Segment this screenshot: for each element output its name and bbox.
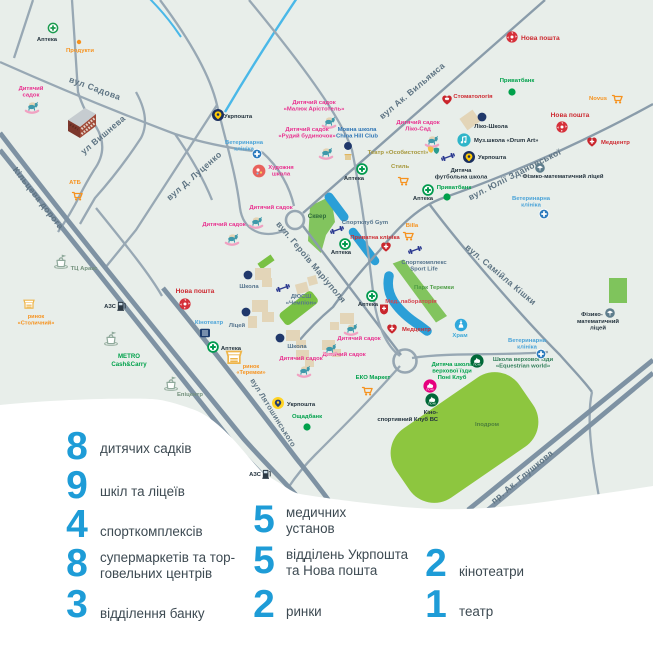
svg-text:спортивний Клуб ВС: спортивний Клуб ВС [377, 416, 438, 423]
svg-text:2: 2 [425, 542, 447, 585]
svg-text:4: 4 [66, 503, 88, 546]
svg-text:Мовна школа: Мовна школа [338, 127, 378, 133]
svg-text:ЕКО Маркет: ЕКО Маркет [356, 375, 391, 381]
svg-text:ліцей: ліцей [590, 325, 606, 332]
svg-text:театр: театр [459, 604, 493, 619]
svg-text:Аптека: Аптека [344, 176, 365, 182]
svg-text:«Рудий будиночок»: «Рудий будиночок» [278, 133, 336, 140]
svg-text:Школа: Школа [287, 344, 307, 350]
svg-text:Кінотеатр: Кінотеатр [195, 320, 224, 326]
svg-text:Продукти: Продукти [66, 48, 94, 54]
svg-text:медичних: медичних [286, 505, 347, 520]
svg-text:кінотеатри: кінотеатри [459, 564, 524, 579]
svg-text:Сквер: Сквер [308, 213, 327, 220]
svg-text:ринок: ринок [243, 364, 260, 370]
svg-text:Школа верхової їзди: Школа верхової їзди [493, 357, 554, 363]
svg-text:ПОНІ: ПОНІ [428, 402, 436, 406]
svg-text:Дитячий садок: Дитячий садок [202, 221, 245, 228]
svg-text:Novus: Novus [589, 96, 608, 102]
svg-text:«Столичний»: «Столичний» [18, 320, 55, 327]
svg-text:Фізико-математичний ліцей: Фізико-математичний ліцей [522, 173, 603, 180]
svg-text:Приватбанк: Приватбанк [500, 77, 535, 84]
svg-text:відділення банку: відділення банку [100, 606, 205, 621]
svg-text:клініка: клініка [517, 344, 538, 350]
svg-text:Ветеринарна: Ветеринарна [225, 140, 264, 146]
svg-text:Billa: Billa [406, 223, 419, 229]
svg-text:Стиль: Стиль [391, 164, 410, 170]
svg-text:Храм: Храм [452, 333, 467, 339]
svg-text:Дитячий садок: Дитячий садок [292, 99, 335, 106]
svg-text:Укрпошта: Укрпошта [478, 155, 507, 161]
svg-text:футбольна школа: футбольна школа [435, 174, 488, 181]
svg-text:Стоматологія: Стоматологія [453, 94, 493, 100]
svg-text:школа: школа [272, 172, 291, 178]
svg-text:клініка: клініка [521, 203, 542, 209]
svg-text:Укрпошта: Укрпошта [287, 402, 316, 408]
svg-text:Поні Клуб: Поні Клуб [438, 374, 467, 381]
svg-text:Епіцентр: Епіцентр [177, 392, 203, 398]
svg-text:ТЦ Аракс: ТЦ Аракс [71, 266, 99, 272]
svg-text:Укрпошта: Укрпошта [224, 114, 253, 120]
svg-text:8: 8 [66, 542, 88, 585]
svg-text:відділень Укрпошта: відділень Укрпошта [286, 547, 409, 562]
svg-text:Ліцей: Ліцей [229, 322, 246, 329]
svg-text:Приватна клініка: Приватна клініка [350, 235, 400, 241]
svg-text:Дитяча школа: Дитяча школа [432, 362, 473, 368]
svg-text:9: 9 [66, 464, 88, 507]
svg-text:3: 3 [66, 583, 88, 626]
svg-text:Аптека: Аптека [358, 302, 379, 308]
svg-text:Sport Life: Sport Life [410, 267, 438, 273]
svg-text:Аптека: Аптека [37, 37, 58, 43]
svg-text:8: 8 [66, 425, 88, 468]
svg-text:Спорткомплекс: Спорткомплекс [401, 260, 447, 266]
svg-text:Дитячий садок: Дитячий садок [249, 204, 292, 211]
svg-text:Іподром: Іподром [475, 422, 499, 428]
svg-text:Аптека: Аптека [331, 250, 352, 256]
svg-text:Ліко-Школа: Ліко-Школа [474, 124, 508, 130]
svg-text:спорткомплексів: спорткомплексів [100, 524, 203, 539]
svg-text:Нова пошта: Нова пошта [176, 288, 215, 295]
svg-text:Аптека: Аптека [413, 196, 434, 202]
svg-text:ринки: ринки [286, 604, 322, 619]
svg-text:говельних центрів: говельних центрів [100, 566, 212, 581]
svg-text:ПОНІ: ПОНІ [426, 388, 434, 392]
svg-text:математичний: математичний [577, 318, 619, 325]
svg-text:«Теремки»: «Теремки» [236, 370, 265, 376]
svg-text:Дитяча: Дитяча [451, 168, 473, 174]
svg-text:Фізико-: Фізико- [581, 312, 603, 318]
svg-text:Дитячий садок: Дитячий садок [285, 126, 328, 133]
svg-text:Театр «Особистості»: Театр «Особистості» [368, 149, 429, 156]
svg-text:Медцентр: Медцентр [601, 140, 630, 146]
svg-text:садок: садок [23, 93, 40, 99]
svg-text:Нова пошта: Нова пошта [551, 112, 590, 119]
svg-text:Дитячий садок: Дитячий садок [337, 335, 380, 342]
svg-text:Ліко-Сад: Ліко-Сад [405, 127, 431, 133]
svg-text:Парк Теремки: Парк Теремки [414, 285, 454, 291]
svg-text:клініка: клініка [234, 147, 255, 153]
svg-text:METRO: METRO [118, 353, 140, 360]
svg-text:Школа: Школа [239, 284, 259, 290]
svg-text:5: 5 [253, 539, 275, 582]
svg-text:5: 5 [253, 498, 275, 541]
svg-text:Муз.школа «Drum Art»: Муз.школа «Drum Art» [474, 138, 539, 144]
svg-text:верхової їзди: верхової їзди [432, 368, 472, 374]
svg-text:China Hill Club: China Hill Club [336, 134, 378, 140]
svg-text:Cash&Carry: Cash&Carry [111, 361, 147, 368]
svg-text:«Малюк Арістотель»: «Малюк Арістотель» [284, 107, 345, 113]
svg-text:Мед. лабораторія: Мед. лабораторія [385, 298, 437, 305]
svg-text:супермаркетів та тор-: супермаркетів та тор- [100, 550, 235, 565]
svg-text:Приватбанк: Приватбанк [437, 184, 472, 191]
svg-text:ДЮСШ: ДЮСШ [291, 294, 311, 300]
svg-text:шкіл та ліцеїв: шкіл та ліцеїв [100, 484, 185, 499]
svg-text:Дитячий садок: Дитячий садок [396, 119, 439, 126]
svg-text:АЗС: АЗС [249, 472, 262, 478]
svg-text:Ветеринарна: Ветеринарна [508, 338, 547, 344]
svg-text:Ветеринарна: Ветеринарна [512, 196, 551, 202]
svg-text:установ: установ [286, 521, 335, 536]
svg-text:ринок: ринок [28, 314, 45, 320]
svg-text:2: 2 [253, 583, 275, 626]
svg-text:Художня: Художня [268, 165, 294, 171]
svg-text:дитячих садків: дитячих садків [100, 441, 191, 456]
svg-text:Спортклуб Gym: Спортклуб Gym [342, 219, 388, 226]
svg-text:Дитячий садок: Дитячий садок [279, 355, 322, 362]
svg-text:АЗС: АЗС [104, 304, 117, 310]
svg-text:1: 1 [425, 583, 447, 626]
svg-text:Кіно-: Кіно- [424, 410, 438, 416]
svg-text:АТБ: АТБ [69, 180, 82, 186]
svg-text:Дитячий: Дитячий [19, 85, 44, 92]
svg-text:«Equestrian world»: «Equestrian world» [496, 364, 551, 370]
svg-text:«Чемпіон»: «Чемпіон» [286, 301, 317, 307]
svg-text:та Нова пошта: та Нова пошта [286, 563, 378, 578]
svg-text:Нова пошта: Нова пошта [521, 35, 560, 42]
svg-text:Ощадбанк: Ощадбанк [292, 413, 322, 420]
svg-text:ПОНІ: ПОНІ [473, 363, 481, 367]
svg-text:Медцентр: Медцентр [402, 327, 431, 333]
